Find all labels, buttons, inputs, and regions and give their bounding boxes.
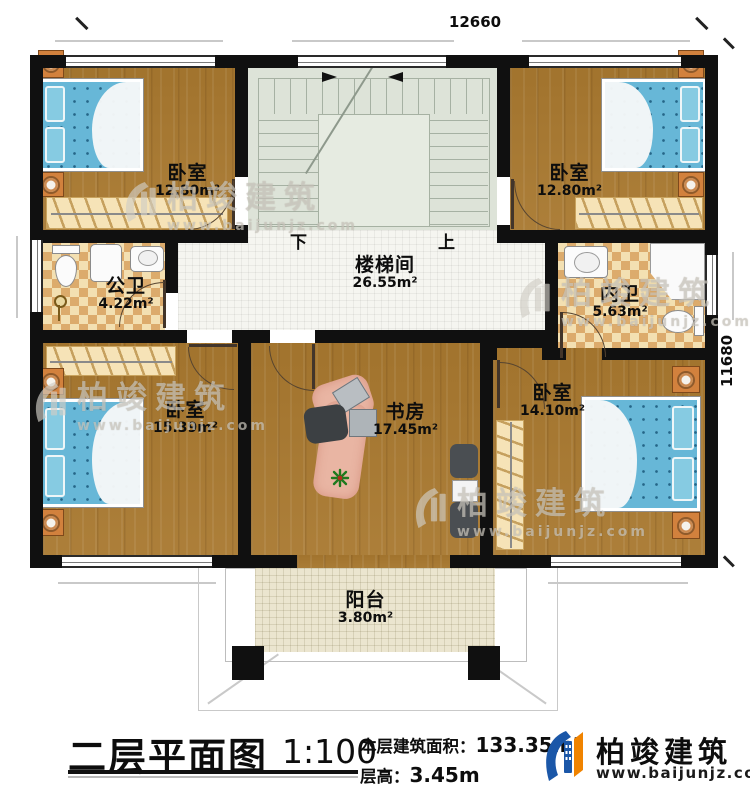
- eaves-line: [16, 236, 18, 318]
- dimension-tick: [695, 17, 708, 30]
- eaves-line: [292, 40, 454, 42]
- interior-wall: [232, 330, 270, 343]
- stair-down-label: 下: [290, 228, 307, 253]
- bed: [38, 78, 144, 172]
- room-name: 卧室: [130, 163, 245, 184]
- window: [705, 255, 718, 315]
- room-area: 17.45m²: [348, 423, 463, 439]
- interior-wall: [480, 343, 493, 555]
- eaves-line: [732, 252, 734, 320]
- exterior-wall: [450, 555, 551, 568]
- floor-height-label: 层高：: [360, 767, 410, 786]
- room-area: 15.39m²: [128, 421, 243, 437]
- exterior-wall: [681, 555, 718, 568]
- exterior-wall: [446, 55, 529, 68]
- room-label-bedroom-tl: 卧室 12.80m²: [130, 163, 245, 200]
- eaves-line: [58, 582, 216, 584]
- pillow: [45, 127, 65, 163]
- brand-url: www.baijunjz.com: [596, 764, 750, 782]
- toilet-tank: [52, 245, 80, 254]
- office-chair: [303, 403, 350, 444]
- lamp-icon: [677, 517, 695, 535]
- pillow: [672, 406, 694, 450]
- window: [551, 555, 681, 568]
- room-label-bedroom-bl: 卧室 15.39m²: [128, 400, 243, 437]
- pillow: [680, 86, 700, 122]
- sink-basin: [138, 250, 158, 266]
- nightstand: [672, 366, 700, 393]
- lamp-icon: [42, 176, 60, 194]
- lamp-icon: [677, 371, 695, 389]
- title-underline-thin: [68, 776, 358, 778]
- room-name: 卧室: [128, 400, 243, 421]
- floor-area-label: 本层建筑面积：: [360, 737, 476, 756]
- exterior-wall: [212, 555, 297, 568]
- interior-wall: [165, 243, 178, 293]
- interior-wall: [30, 230, 248, 243]
- interior-wall: [497, 230, 718, 243]
- interior-wall: [235, 55, 248, 177]
- room-name: 书房: [348, 402, 463, 423]
- dimension-tick: [723, 555, 735, 567]
- stair-landing: [318, 114, 430, 227]
- window: [30, 240, 43, 312]
- sink-basin: [574, 252, 600, 273]
- wardrobe: [46, 346, 176, 376]
- exterior-wall: [30, 555, 62, 568]
- stair-direction-arrow: [322, 72, 337, 82]
- room-label-bedroom-tr: 卧室 12.80m²: [512, 163, 627, 200]
- stair-direction-arrow: [388, 72, 403, 82]
- room-name: 内卫: [580, 284, 660, 305]
- room-label-study: 书房 17.45m²: [348, 402, 463, 439]
- room-area: 5.63m²: [580, 305, 660, 321]
- exterior-wall: [30, 55, 43, 240]
- room-area: 14.10m²: [495, 404, 610, 420]
- room-area: 12.80m²: [512, 184, 627, 200]
- window: [298, 55, 446, 68]
- lamp-icon: [682, 176, 700, 194]
- exterior-wall: [215, 55, 298, 68]
- room-name: 阳台: [308, 590, 423, 611]
- stair-treads-right: [428, 114, 488, 225]
- room-name: 楼梯间: [330, 255, 440, 276]
- exterior-wall: [30, 312, 43, 568]
- legend-bar: 二层平面图 1:100 本层建筑面积：133.35m² 层高：3.45m 柏竣建…: [0, 718, 750, 794]
- wardrobe: [496, 420, 524, 550]
- column: [232, 646, 264, 680]
- room-area: 12.80m²: [130, 184, 245, 200]
- floor-height-row: 层高：3.45m: [360, 763, 480, 787]
- window: [529, 55, 681, 68]
- toilet-bowl: [662, 310, 694, 333]
- drain-stem: [58, 305, 60, 321]
- side-chair: [450, 444, 478, 478]
- floor-height-value: 3.45m: [410, 763, 480, 787]
- eaves-line: [522, 40, 690, 42]
- dimension-tick: [75, 17, 88, 30]
- stair-up-label: 上: [438, 228, 455, 253]
- room-label-public-bath: 公卫 4.22m²: [86, 276, 166, 313]
- pillow: [45, 408, 65, 450]
- room-label-stair-hall: 楼梯间 26.55m²: [330, 255, 440, 292]
- brand-logo-icon: [540, 727, 588, 787]
- dimension-top: 12660: [420, 13, 530, 31]
- lamp-icon: [42, 373, 60, 391]
- pillow: [45, 86, 65, 122]
- room-area: 4.22m²: [86, 297, 166, 313]
- eaves-line: [55, 40, 223, 42]
- room-name: 卧室: [512, 163, 627, 184]
- window: [66, 55, 215, 68]
- nightstand: [678, 172, 704, 197]
- side-chair: [450, 502, 478, 538]
- interior-wall: [315, 330, 480, 343]
- room-name: 公卫: [86, 276, 166, 297]
- room-label-bedroom-br: 卧室 14.10m²: [495, 383, 610, 420]
- room-area: 3.80m²: [308, 611, 423, 627]
- dimension-tick: [723, 37, 735, 49]
- lamp-icon: [42, 514, 60, 532]
- pillow: [672, 457, 694, 501]
- side-table: [452, 480, 478, 502]
- plant-icon: [330, 468, 350, 488]
- dimension-right: 11680: [718, 326, 736, 396]
- toilet-tank: [694, 306, 704, 336]
- floor-plan: 卧室 12.80m² 卧室 12.80m² 公卫 4.22m² 内卫 5.63m…: [0, 0, 750, 794]
- pillow: [680, 127, 700, 163]
- window: [62, 555, 212, 568]
- interior-wall: [602, 348, 718, 360]
- floor-drain: [54, 295, 67, 308]
- eaves-line: [548, 582, 688, 584]
- stair-treads-top: [258, 78, 488, 114]
- exterior-wall: [705, 55, 718, 255]
- room-name: 卧室: [495, 383, 610, 404]
- room-label-ensuite-bath: 内卫 5.63m²: [580, 284, 660, 321]
- interior-wall: [542, 348, 558, 360]
- room-label-balcony: 阳台 3.80m²: [308, 590, 423, 627]
- interior-wall: [30, 330, 187, 343]
- interior-wall: [497, 55, 510, 177]
- wardrobe: [575, 197, 703, 229]
- bed: [601, 78, 707, 172]
- interior-wall: [238, 343, 251, 555]
- room-area: 26.55m²: [330, 276, 440, 292]
- pillow: [45, 455, 65, 497]
- nightstand: [672, 512, 700, 539]
- column: [468, 646, 500, 680]
